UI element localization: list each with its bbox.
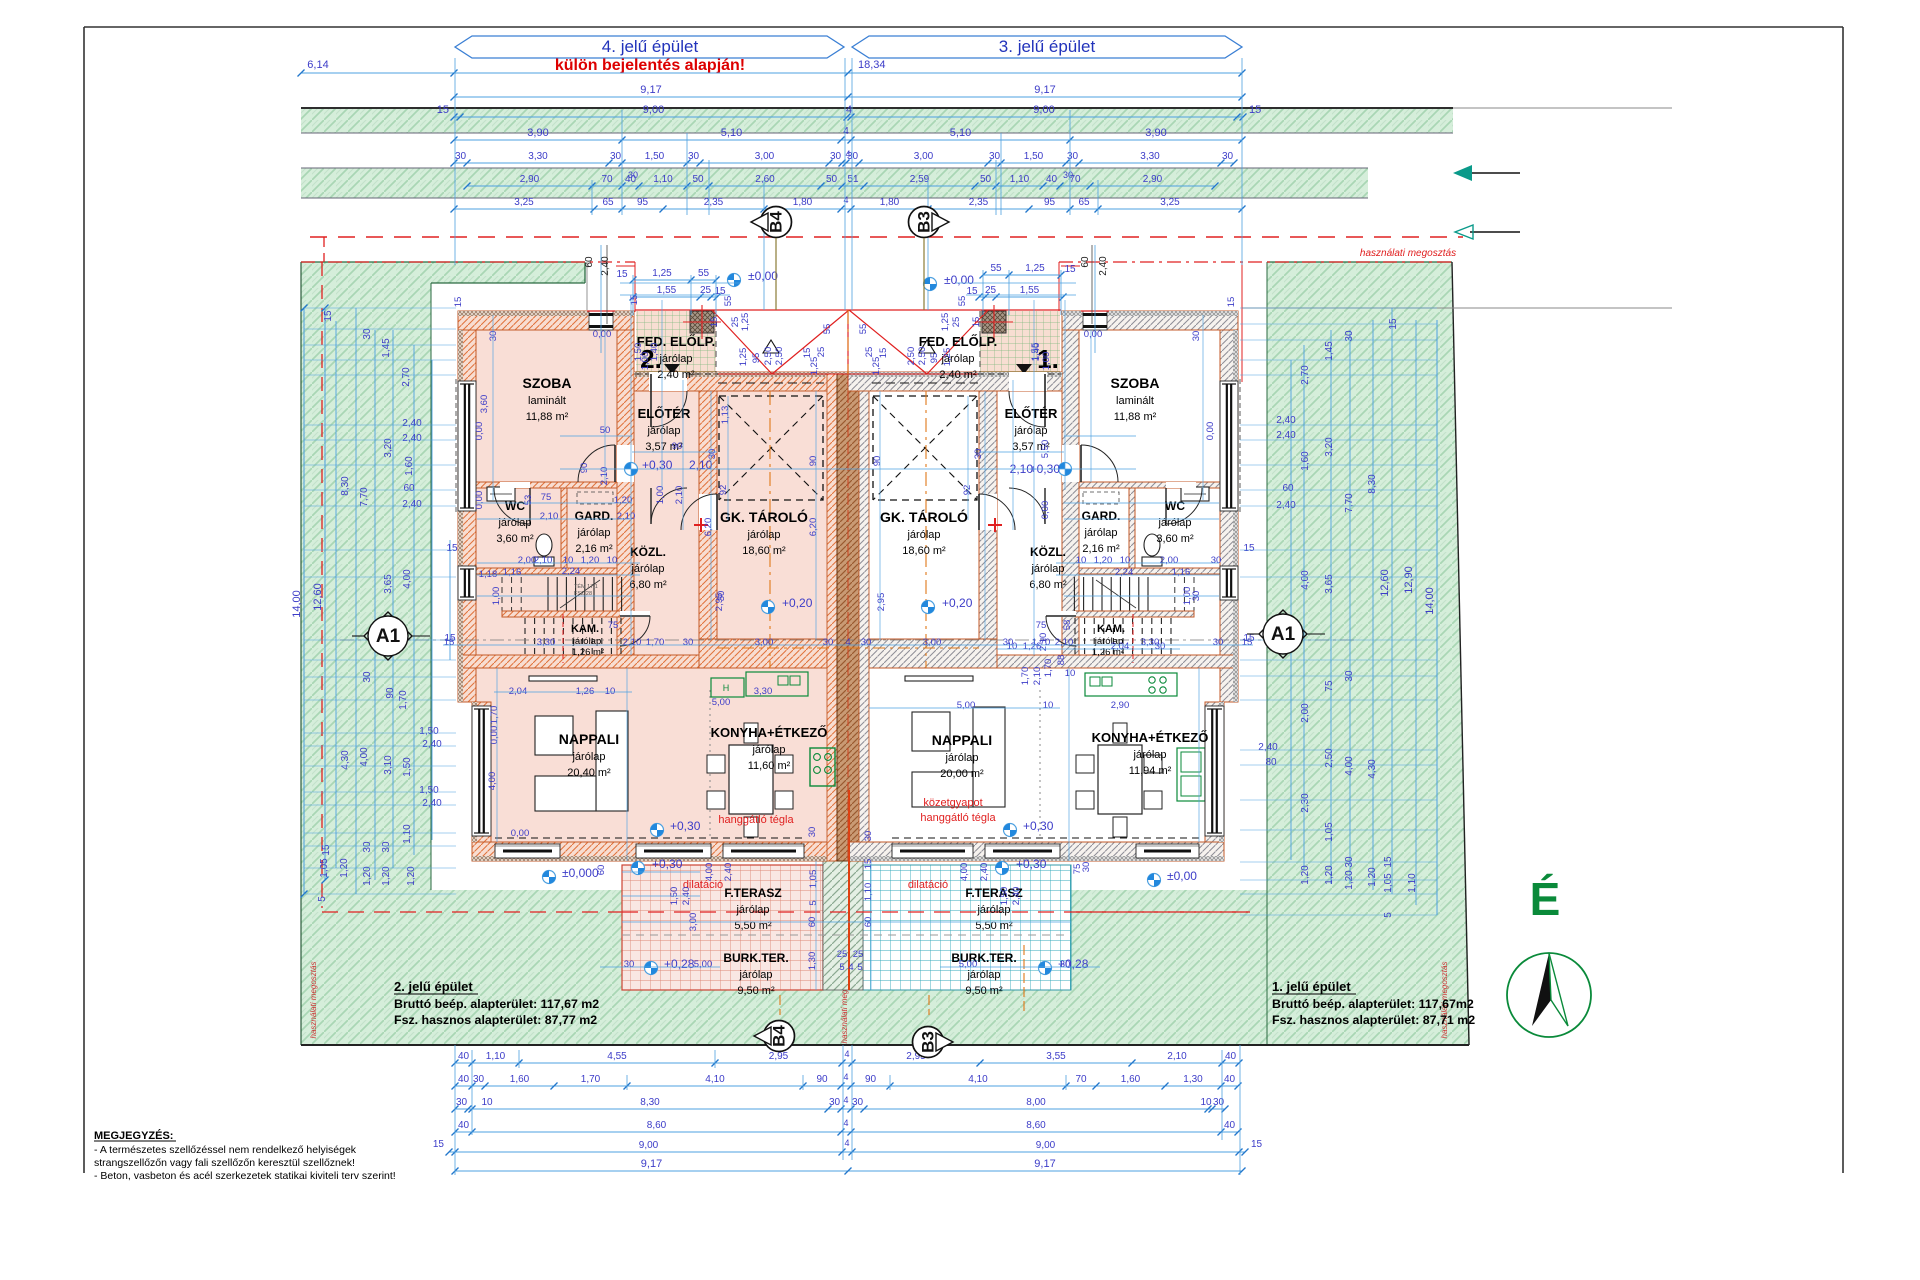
svg-text:8,30: 8,30 — [1367, 474, 1378, 494]
svg-text:2,40: 2,40 — [1011, 887, 1022, 906]
svg-text:30: 30 — [628, 170, 638, 180]
svg-text:30: 30 — [381, 841, 392, 853]
svg-text:88: 88 — [1056, 655, 1067, 666]
svg-text:1,05: 1,05 — [808, 870, 819, 889]
svg-text:2,10: 2,10 — [1167, 1051, 1187, 1062]
svg-text:1,20: 1,20 — [381, 866, 392, 886]
svg-text:11,60 m²: 11,60 m² — [748, 760, 791, 772]
svg-text:járólap: járólap — [576, 527, 610, 539]
svg-text:4: 4 — [848, 962, 853, 973]
svg-text:3,00: 3,00 — [755, 637, 774, 648]
svg-text:40: 40 — [1224, 1074, 1236, 1085]
svg-text:1,10: 1,10 — [653, 174, 673, 185]
svg-text:14,00: 14,00 — [1424, 587, 1436, 615]
svg-text:1,16: 1,16 — [1172, 567, 1191, 578]
svg-text:10: 10 — [1120, 555, 1131, 566]
svg-text:4,10: 4,10 — [705, 1074, 725, 1085]
svg-text:1,25: 1,25 — [740, 313, 751, 332]
svg-text:1,05: 1,05 — [1324, 822, 1335, 842]
svg-text:0,00: 0,00 — [474, 422, 485, 441]
svg-text:6,14: 6,14 — [307, 59, 328, 71]
svg-text:12,90: 12,90 — [1403, 566, 1415, 594]
svg-text:3,00: 3,00 — [923, 637, 942, 648]
svg-text:1,30: 1,30 — [807, 952, 818, 971]
svg-text:8,30: 8,30 — [640, 1097, 660, 1108]
svg-text:0,00: 0,00 — [474, 491, 485, 510]
svg-text:járólap: járólap — [646, 425, 680, 437]
svg-text:3,55: 3,55 — [1046, 1051, 1066, 1062]
svg-text:9,17: 9,17 — [641, 1158, 662, 1170]
svg-text:15: 15 — [323, 310, 334, 322]
svg-text:30: 30 — [829, 1097, 841, 1108]
svg-text:30: 30 — [624, 959, 635, 970]
svg-text:B3: B3 — [919, 1031, 938, 1053]
svg-text:55: 55 — [957, 296, 968, 307]
svg-text:3,20: 3,20 — [383, 438, 394, 458]
svg-text:15: 15 — [616, 269, 628, 280]
svg-text:2,40: 2,40 — [600, 256, 611, 276]
svg-text:2,95: 2,95 — [714, 593, 725, 612]
svg-text:8,30: 8,30 — [340, 476, 351, 496]
svg-text:1,10: 1,10 — [1407, 873, 1418, 893]
svg-text:30: 30 — [1213, 1097, 1225, 1108]
svg-text:30: 30 — [1081, 862, 1092, 873]
svg-text:4,00: 4,00 — [402, 569, 413, 589]
svg-text:KÖZL.: KÖZL. — [630, 544, 666, 559]
svg-text:1,25: 1,25 — [1025, 263, 1045, 274]
svg-text:1,60: 1,60 — [510, 1074, 530, 1085]
svg-text:14,00: 14,00 — [291, 590, 303, 618]
svg-text:NAPPALI: NAPPALI — [932, 732, 992, 748]
svg-text:2,90: 2,90 — [520, 174, 540, 185]
svg-text:15: 15 — [1251, 1139, 1263, 1150]
svg-text:- Beton, vasbeton és acél szer: - Beton, vasbeton és acél szerkezetek st… — [94, 1170, 396, 1182]
svg-text:+0,30: +0,30 — [652, 857, 683, 871]
svg-text:70: 70 — [1075, 1074, 1087, 1085]
svg-text:+0,30: +0,30 — [670, 819, 701, 833]
svg-text:5: 5 — [317, 896, 328, 902]
svg-text:SZOBA: SZOBA — [523, 375, 572, 391]
svg-text:2,90: 2,90 — [1111, 700, 1130, 711]
svg-text:4,10: 4,10 — [968, 1074, 988, 1085]
svg-text:4,00: 4,00 — [1344, 756, 1355, 776]
svg-text:2,40 m²: 2,40 m² — [939, 369, 977, 381]
svg-text:járólap: járólap — [1013, 425, 1047, 437]
svg-text:1,20: 1,20 — [614, 495, 633, 506]
svg-text:KONYHA+ÉTKEZŐ: KONYHA+ÉTKEZŐ — [1092, 730, 1209, 745]
svg-text:2,40: 2,40 — [723, 863, 734, 882]
svg-text:járólap: járólap — [571, 751, 605, 763]
svg-text:2,35: 2,35 — [969, 197, 989, 208]
svg-text:30: 30 — [1067, 151, 1079, 162]
svg-text:4: 4 — [844, 1049, 849, 1059]
svg-text:15: 15 — [966, 286, 978, 297]
svg-text:9,00: 9,00 — [639, 1140, 659, 1151]
svg-text:95: 95 — [637, 197, 649, 208]
svg-text:használati megosztás: használati megosztás — [1360, 248, 1456, 259]
svg-text:2,40: 2,40 — [402, 433, 422, 444]
svg-text:2,40: 2,40 — [1098, 256, 1109, 276]
svg-text:10: 10 — [1043, 700, 1054, 711]
svg-text:4,55: 4,55 — [607, 1051, 627, 1062]
svg-text:40: 40 — [458, 1051, 470, 1062]
svg-text:2,10: 2,10 — [534, 555, 553, 566]
svg-text:3,30: 3,30 — [754, 686, 773, 697]
svg-text:90: 90 — [579, 463, 590, 474]
svg-text:járólap: járólap — [746, 529, 780, 541]
svg-text:5: 5 — [839, 962, 844, 973]
svg-text:1,00: 1,00 — [655, 486, 666, 505]
svg-text:2,60: 2,60 — [755, 174, 775, 185]
svg-text:+0,20: +0,20 — [782, 596, 813, 610]
svg-text:2,24: 2,24 — [1115, 567, 1134, 578]
svg-text:25: 25 — [816, 347, 827, 358]
svg-text:10: 10 — [563, 555, 574, 566]
svg-text:12,60: 12,60 — [1379, 569, 1391, 597]
svg-text:4,30: 4,30 — [340, 750, 351, 770]
svg-text:5: 5 — [808, 900, 819, 905]
svg-text:9,50 m²: 9,50 m² — [737, 985, 775, 997]
svg-text:1,00: 1,00 — [1041, 352, 1052, 371]
svg-text:+0,30: +0,30 — [642, 458, 673, 472]
svg-text:15: 15 — [878, 348, 889, 359]
svg-text:10: 10 — [607, 555, 618, 566]
svg-text:18,60 m²: 18,60 m² — [902, 545, 946, 557]
svg-text:75: 75 — [608, 620, 619, 631]
svg-text:3,30: 3,30 — [528, 151, 548, 162]
svg-text:9,00: 9,00 — [1033, 104, 1054, 116]
svg-text:2,10: 2,10 — [617, 511, 636, 522]
svg-text:95: 95 — [929, 353, 940, 364]
svg-text:1,60: 1,60 — [1300, 451, 1311, 471]
svg-text:30: 30 — [830, 151, 842, 162]
svg-text:8,60: 8,60 — [1026, 1120, 1046, 1131]
svg-text:1,25: 1,25 — [652, 268, 672, 279]
svg-text:2,50: 2,50 — [774, 347, 785, 366]
svg-text:Bruttó beép. alapterület: 117,: Bruttó beép. alapterület: 117,67m2 — [1272, 997, 1474, 1011]
svg-text:1,45: 1,45 — [381, 338, 392, 358]
svg-text:4: 4 — [843, 195, 848, 205]
svg-text:2,40: 2,40 — [422, 739, 442, 750]
svg-text:30: 30 — [1222, 151, 1234, 162]
svg-text:3,30: 3,30 — [537, 637, 556, 648]
svg-text:1,26 m²: 1,26 m² — [572, 647, 604, 658]
svg-text:3. jelű épület: 3. jelű épület — [999, 37, 1096, 56]
svg-text:15: 15 — [1242, 637, 1253, 648]
svg-text:10: 10 — [605, 686, 616, 697]
svg-text:2,70: 2,70 — [401, 367, 412, 387]
svg-text:1,20: 1,20 — [1300, 865, 1311, 885]
svg-text:30: 30 — [610, 151, 622, 162]
svg-text:1,70: 1,70 — [1043, 659, 1054, 678]
svg-text:90: 90 — [816, 1074, 828, 1085]
svg-text:2,10: 2,10 — [674, 486, 685, 505]
svg-text:1,05: 1,05 — [1383, 873, 1394, 893]
svg-text:+0,30: +0,30 — [1023, 819, 1054, 833]
svg-text:1,25: 1,25 — [942, 348, 953, 367]
svg-text:10: 10 — [1065, 668, 1076, 679]
svg-text:20,40 m²: 20,40 m² — [567, 767, 611, 779]
svg-text:25: 25 — [985, 285, 997, 296]
svg-text:3,00: 3,00 — [914, 151, 934, 162]
svg-text:75: 75 — [1324, 680, 1335, 692]
svg-text:15: 15 — [709, 317, 720, 328]
svg-text:65: 65 — [602, 197, 614, 208]
svg-text:4: 4 — [845, 637, 850, 648]
svg-text:2,16 m²: 2,16 m² — [1082, 543, 1120, 555]
svg-text:KONYHA+ÉTKEZŐ: KONYHA+ÉTKEZŐ — [711, 725, 828, 740]
svg-text:2,50: 2,50 — [906, 347, 917, 366]
svg-text:Fsz. hasznos alapterület: 87,7: Fsz. hasznos alapterület: 87,71 m2 — [1272, 1013, 1475, 1027]
svg-text:2,95: 2,95 — [876, 593, 887, 612]
svg-text:2,10: 2,10 — [623, 637, 642, 648]
svg-text:70: 70 — [601, 174, 613, 185]
svg-text:1,20: 1,20 — [1094, 555, 1113, 566]
svg-text:2,10: 2,10 — [1055, 637, 1074, 648]
svg-text:2,40: 2,40 — [1276, 500, 1296, 511]
svg-text:11,88 m²: 11,88 m² — [526, 411, 569, 423]
svg-text:4: 4 — [844, 1138, 849, 1148]
svg-text:3,60 m²: 3,60 m² — [1156, 533, 1194, 545]
svg-text:1,18: 1,18 — [479, 569, 498, 580]
svg-text:1,25: 1,25 — [940, 313, 951, 332]
svg-text:15: 15 — [1226, 297, 1237, 308]
svg-text:1,80: 1,80 — [793, 197, 813, 208]
svg-text:2,40: 2,40 — [402, 499, 422, 510]
svg-text:3,60 m²: 3,60 m² — [496, 533, 534, 545]
svg-text:dilatáció: dilatáció — [908, 879, 948, 891]
svg-text:1,70: 1,70 — [1020, 667, 1031, 686]
svg-text:40: 40 — [1046, 174, 1058, 185]
svg-text:15: 15 — [446, 543, 458, 554]
svg-text:2,10: 2,10 — [1038, 633, 1049, 652]
svg-text:10: 10 — [1200, 1097, 1212, 1108]
svg-text:11,94 m²: 11,94 m² — [1129, 765, 1172, 777]
svg-text:strangszellőzőn vagy fali szel: strangszellőzőn vagy fali szellőzőn kere… — [94, 1157, 355, 1169]
svg-text:65: 65 — [1078, 197, 1090, 208]
svg-text:5,50: 5,50 — [1040, 440, 1051, 459]
svg-text:30: 30 — [1211, 555, 1222, 566]
svg-text:Fsz. hasznos alapterület: 87,7: Fsz. hasznos alapterület: 87,77 m2 — [394, 1013, 597, 1027]
svg-text:1,25: 1,25 — [738, 348, 749, 367]
svg-text:WC: WC — [1165, 499, 1185, 513]
svg-text:55: 55 — [990, 263, 1002, 274]
svg-text:GARD.: GARD. — [575, 509, 614, 523]
svg-text:5,00: 5,00 — [959, 959, 978, 970]
svg-text:95: 95 — [1044, 197, 1056, 208]
svg-text:90: 90 — [872, 456, 883, 467]
svg-text:1,70: 1,70 — [646, 637, 665, 648]
svg-text:40: 40 — [1224, 1120, 1236, 1131]
svg-text:60: 60 — [1080, 256, 1091, 268]
svg-text:6,80 m²: 6,80 m² — [629, 579, 667, 591]
svg-text:2,40: 2,40 — [1276, 415, 1296, 426]
svg-text:15: 15 — [802, 348, 813, 359]
svg-text:B4: B4 — [767, 211, 786, 233]
svg-text:18,34: 18,34 — [858, 59, 886, 71]
svg-text:használati megosztás: használati megosztás — [309, 962, 318, 1039]
svg-text:1,10: 1,10 — [486, 1051, 506, 1062]
svg-text:9,50 m²: 9,50 m² — [965, 985, 1003, 997]
svg-text:30: 30 — [863, 831, 874, 842]
svg-text:4: 4 — [843, 1095, 848, 1105]
svg-text:járólap: járólap — [751, 744, 785, 756]
svg-text:járólap: járólap — [966, 969, 1000, 981]
svg-text:B3: B3 — [915, 211, 934, 233]
svg-text:90: 90 — [865, 1074, 877, 1085]
svg-text:4: 4 — [843, 1118, 848, 1128]
svg-text:2,40: 2,40 — [1276, 430, 1296, 441]
svg-text:KÖZL.: KÖZL. — [1030, 544, 1066, 559]
svg-text:3,25: 3,25 — [1160, 197, 1180, 208]
svg-text:GK. TÁROLÓ: GK. TÁROLÓ — [720, 508, 808, 525]
svg-text:GK. TÁROLÓ: GK. TÁROLÓ — [880, 508, 968, 525]
svg-text:2,10: 2,10 — [540, 511, 559, 522]
svg-text:1,50: 1,50 — [419, 726, 439, 737]
svg-text:FED. ELŐLP.: FED. ELŐLP. — [919, 334, 998, 349]
svg-text:11,88 m²: 11,88 m² — [1114, 411, 1157, 423]
svg-text:KAM.: KAM. — [571, 623, 599, 635]
svg-text:55: 55 — [858, 324, 869, 335]
svg-text:±0,00: ±0,00 — [1167, 869, 1197, 883]
svg-text:1,13: 1,13 — [720, 406, 731, 425]
svg-text:1,70: 1,70 — [581, 1074, 601, 1085]
svg-text:1,20: 1,20 — [1367, 867, 1378, 887]
svg-text:92: 92 — [718, 485, 729, 496]
svg-text:9,00: 9,00 — [643, 104, 664, 116]
svg-text:60: 60 — [1282, 483, 1294, 494]
svg-text:2,40 m²: 2,40 m² — [657, 369, 695, 381]
svg-text:30: 30 — [973, 449, 984, 460]
svg-text:1,80: 1,80 — [880, 197, 900, 208]
svg-text:járólap: járólap — [735, 904, 769, 916]
svg-text:0,00: 0,00 — [1084, 329, 1103, 340]
svg-text:40: 40 — [458, 1074, 470, 1085]
svg-text:20,00 m²: 20,00 m² — [940, 768, 984, 780]
svg-text:járólap: járólap — [658, 353, 692, 365]
svg-text:3,00: 3,00 — [755, 151, 775, 162]
svg-text:4. jelű épület: 4. jelű épület — [602, 37, 699, 56]
svg-text:8,60: 8,60 — [647, 1120, 667, 1131]
svg-text:járólap: járólap — [630, 563, 664, 575]
svg-text:2,16 m²: 2,16 m² — [575, 543, 613, 555]
svg-text:4: 4 — [843, 1072, 848, 1082]
svg-text:1,45: 1,45 — [1324, 341, 1335, 361]
svg-text:30: 30 — [683, 637, 694, 648]
svg-text:laminált: laminált — [528, 395, 566, 407]
svg-text:±0,00: ±0,00 — [944, 273, 974, 287]
svg-text:2,90: 2,90 — [1143, 174, 1163, 185]
svg-text:külön bejelentés alapján!: külön bejelentés alapján! — [555, 57, 745, 74]
svg-text:+0,30: +0,30 — [1016, 857, 1047, 871]
svg-text:2,40: 2,40 — [979, 863, 990, 882]
svg-text:60: 60 — [403, 483, 415, 494]
svg-text:40: 40 — [1225, 1051, 1237, 1062]
svg-text:2,40: 2,40 — [422, 798, 442, 809]
svg-text:+0,28: +0,28 — [664, 957, 695, 971]
svg-text:10: 10 — [1076, 555, 1087, 566]
svg-text:4: 4 — [845, 149, 850, 159]
svg-text:1,60: 1,60 — [1121, 1074, 1141, 1085]
svg-text:A1: A1 — [376, 626, 401, 647]
svg-text:GARD.: GARD. — [1082, 509, 1121, 523]
svg-text:3,90: 3,90 — [1145, 127, 1166, 139]
svg-text:58: 58 — [1062, 620, 1073, 631]
svg-text:2,04: 2,04 — [1111, 641, 1130, 652]
svg-text:5,10: 5,10 — [950, 127, 971, 139]
svg-text:2,24: 2,24 — [562, 566, 581, 577]
svg-text:5,00: 5,00 — [957, 700, 976, 711]
svg-text:5,00: 5,00 — [712, 697, 731, 708]
svg-text:1,20: 1,20 — [1324, 865, 1335, 885]
svg-text:1,50: 1,50 — [999, 887, 1010, 906]
svg-text:18,60 m²: 18,60 m² — [742, 545, 786, 557]
svg-text:1,50: 1,50 — [1024, 151, 1044, 162]
svg-text:30: 30 — [989, 151, 1001, 162]
svg-text:25: 25 — [951, 317, 962, 328]
svg-text:KAM.: KAM. — [1097, 623, 1125, 635]
svg-text:TÉM 17.1: TÉM 17.1 — [574, 583, 598, 590]
svg-text:53: 53 — [523, 495, 534, 506]
svg-text:3,90: 3,90 — [527, 127, 548, 139]
svg-text:5,00: 5,00 — [694, 959, 713, 970]
svg-text:1,20: 1,20 — [362, 866, 373, 886]
svg-text:30: 30 — [707, 449, 718, 460]
svg-text:0,00: 0,00 — [489, 726, 500, 745]
svg-text:3,10: 3,10 — [383, 755, 394, 775]
svg-text:0,00: 0,00 — [593, 329, 612, 340]
svg-text:4,00: 4,00 — [359, 747, 370, 767]
svg-text:A1: A1 — [1271, 624, 1296, 645]
svg-text:2,00: 2,00 — [1300, 703, 1311, 723]
svg-text:5,10: 5,10 — [721, 127, 742, 139]
svg-text:90: 90 — [808, 456, 819, 467]
svg-text:8,00: 8,00 — [1026, 1097, 1046, 1108]
svg-text:30: 30 — [852, 1097, 864, 1108]
svg-text:MEGJEGYZÉS:: MEGJEGYZÉS: — [94, 1129, 173, 1142]
svg-text:4,00: 4,00 — [704, 863, 715, 882]
svg-text:9,17: 9,17 — [1034, 84, 1055, 96]
svg-text:30: 30 — [1213, 637, 1224, 648]
svg-text:közetgyapot: közetgyapot — [923, 797, 982, 809]
svg-text:2. jelű épület: 2. jelű épület — [394, 979, 473, 994]
svg-text:30: 30 — [456, 1097, 468, 1108]
svg-text:30: 30 — [455, 151, 467, 162]
svg-text:Bruttó beép. alapterület: 117,: Bruttó beép. alapterület: 117,67 m2 — [394, 997, 599, 1011]
svg-text:6,80 m²: 6,80 m² — [1029, 579, 1067, 591]
svg-text:30: 30 — [488, 331, 499, 342]
svg-text:95: 95 — [751, 353, 762, 364]
svg-text:10: 10 — [1007, 641, 1018, 652]
svg-text:NAPPALI: NAPPALI — [559, 731, 619, 747]
svg-text:1,40: 1,40 — [649, 343, 660, 362]
svg-text:50: 50 — [980, 174, 992, 185]
svg-text:3,25: 3,25 — [514, 197, 534, 208]
svg-text:hanggátló tégla: hanggátló tégla — [718, 814, 794, 826]
svg-text:ELŐTÉR: ELŐTÉR — [1005, 406, 1058, 421]
svg-text:4,00: 4,00 — [1300, 570, 1311, 590]
svg-text:25: 25 — [700, 285, 712, 296]
svg-text:2,40: 2,40 — [402, 418, 422, 429]
svg-text:1,50: 1,50 — [402, 757, 413, 777]
svg-text:2,40: 2,40 — [1258, 742, 1278, 753]
svg-text:2,30: 2,30 — [1300, 793, 1311, 813]
svg-text:15: 15 — [629, 295, 640, 306]
svg-text:2,04: 2,04 — [509, 686, 528, 697]
svg-text:4,00: 4,00 — [487, 772, 498, 791]
svg-text:1,70: 1,70 — [489, 706, 500, 725]
svg-text:30: 30 — [1063, 170, 1073, 180]
